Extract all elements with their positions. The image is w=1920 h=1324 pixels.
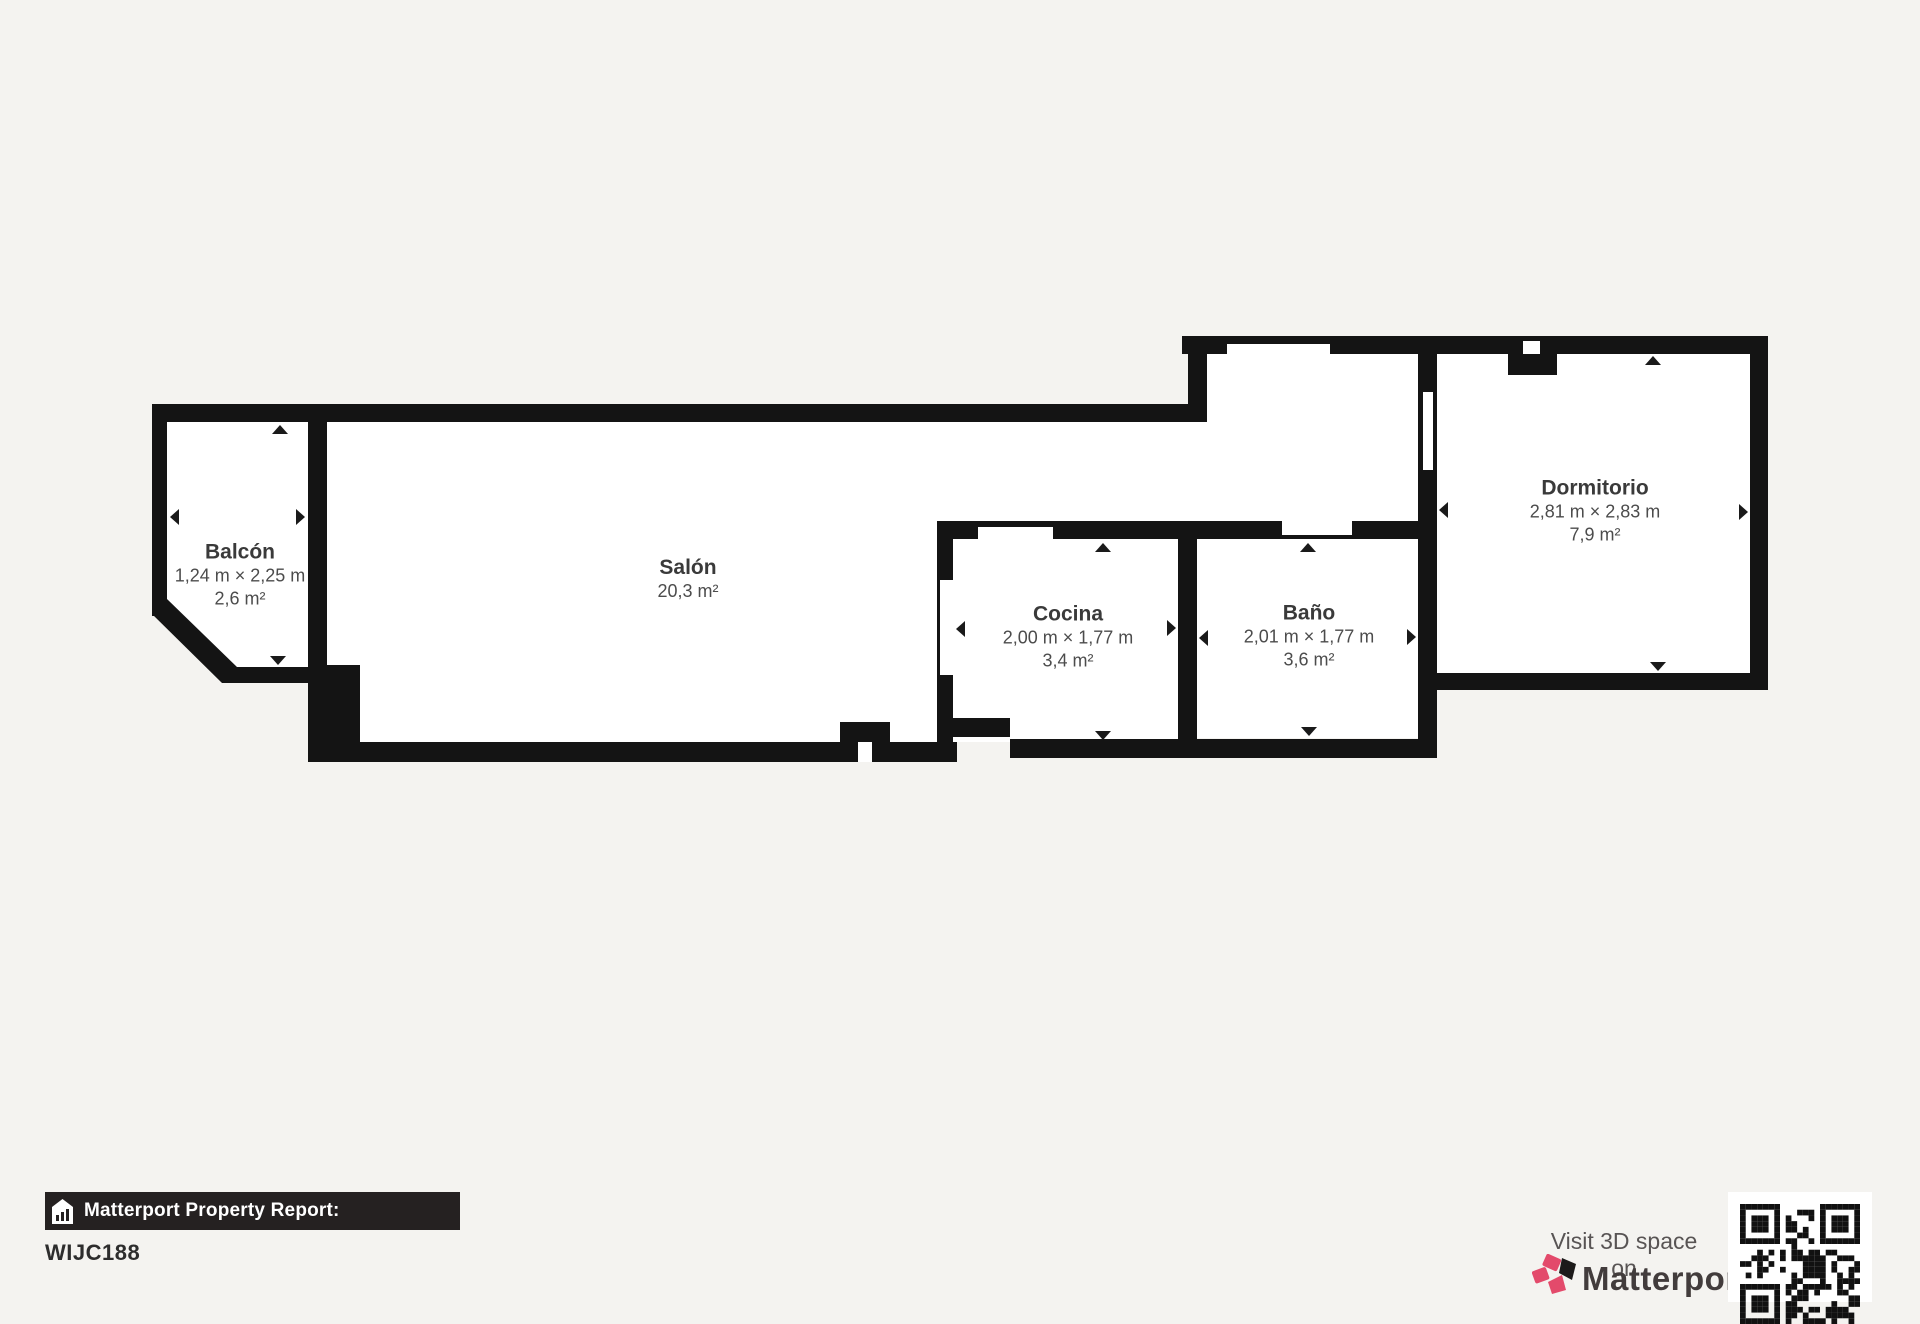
room-area: 3,6 m²	[1244, 649, 1375, 671]
report-header-bar: Matterport Property Report:	[45, 1192, 460, 1230]
room-name: Balcón	[175, 541, 306, 565]
room-label-balcon: Balcón 1,24 m × 2,25 m 2,6 m²	[175, 541, 306, 610]
room-label-dormitorio: Dormitorio 2,81 m × 2,83 m 7,9 m²	[1530, 477, 1661, 546]
matterport-property-report-page: { "floorplan": { "rooms": [ {"name": "Ba…	[0, 0, 1920, 1280]
room-dimensions: 2,00 m × 1,77 m	[1003, 627, 1134, 650]
bano-window-opening	[1282, 521, 1352, 535]
house-chart-icon	[52, 1199, 73, 1224]
room-dimensions: 1,24 m × 2,25 m	[175, 565, 306, 588]
room-dimensions: 2,01 m × 1,77 m	[1244, 626, 1375, 649]
room-label-cocina: Cocina 2,00 m × 1,77 m 3,4 m²	[1003, 603, 1134, 672]
room-dimensions: 2,81 m × 2,83 m	[1530, 501, 1661, 524]
report-bar-label: Matterport Property Report:	[84, 1200, 340, 1222]
room-name: Cocina	[1003, 603, 1134, 627]
salon-bottom-opening	[858, 742, 872, 762]
room-salon-floor	[327, 422, 937, 742]
hall-window-opening	[1227, 344, 1330, 354]
entry-hall-floor	[1207, 354, 1418, 422]
room-area: 2,6 m²	[175, 588, 306, 610]
hall-passage-floor	[937, 422, 1418, 521]
room-label-salon: Salón 20,3 m²	[657, 556, 718, 602]
room-area: 3,4 m²	[1003, 650, 1134, 672]
room-name: Salón	[657, 556, 718, 580]
room-area: 7,9 m²	[1530, 524, 1661, 546]
room-label-bano: Baño 2,01 m × 1,77 m 3,6 m²	[1244, 602, 1375, 671]
qr-matrix	[1740, 1204, 1860, 1324]
cocina-door-opening	[940, 580, 953, 675]
cocina-window-opening	[978, 527, 1053, 539]
dormitorio-door-opening	[1423, 392, 1433, 470]
qr-code	[1728, 1192, 1872, 1302]
room-area: 20,3 m²	[657, 580, 718, 602]
brand-text: Matterport	[1582, 1260, 1750, 1297]
floor-plan	[0, 0, 1920, 1280]
room-name: Baño	[1244, 602, 1375, 626]
dormitorio-top-opening	[1523, 341, 1540, 354]
property-id: WIJC188	[45, 1240, 140, 1266]
room-name: Dormitorio	[1530, 477, 1661, 501]
